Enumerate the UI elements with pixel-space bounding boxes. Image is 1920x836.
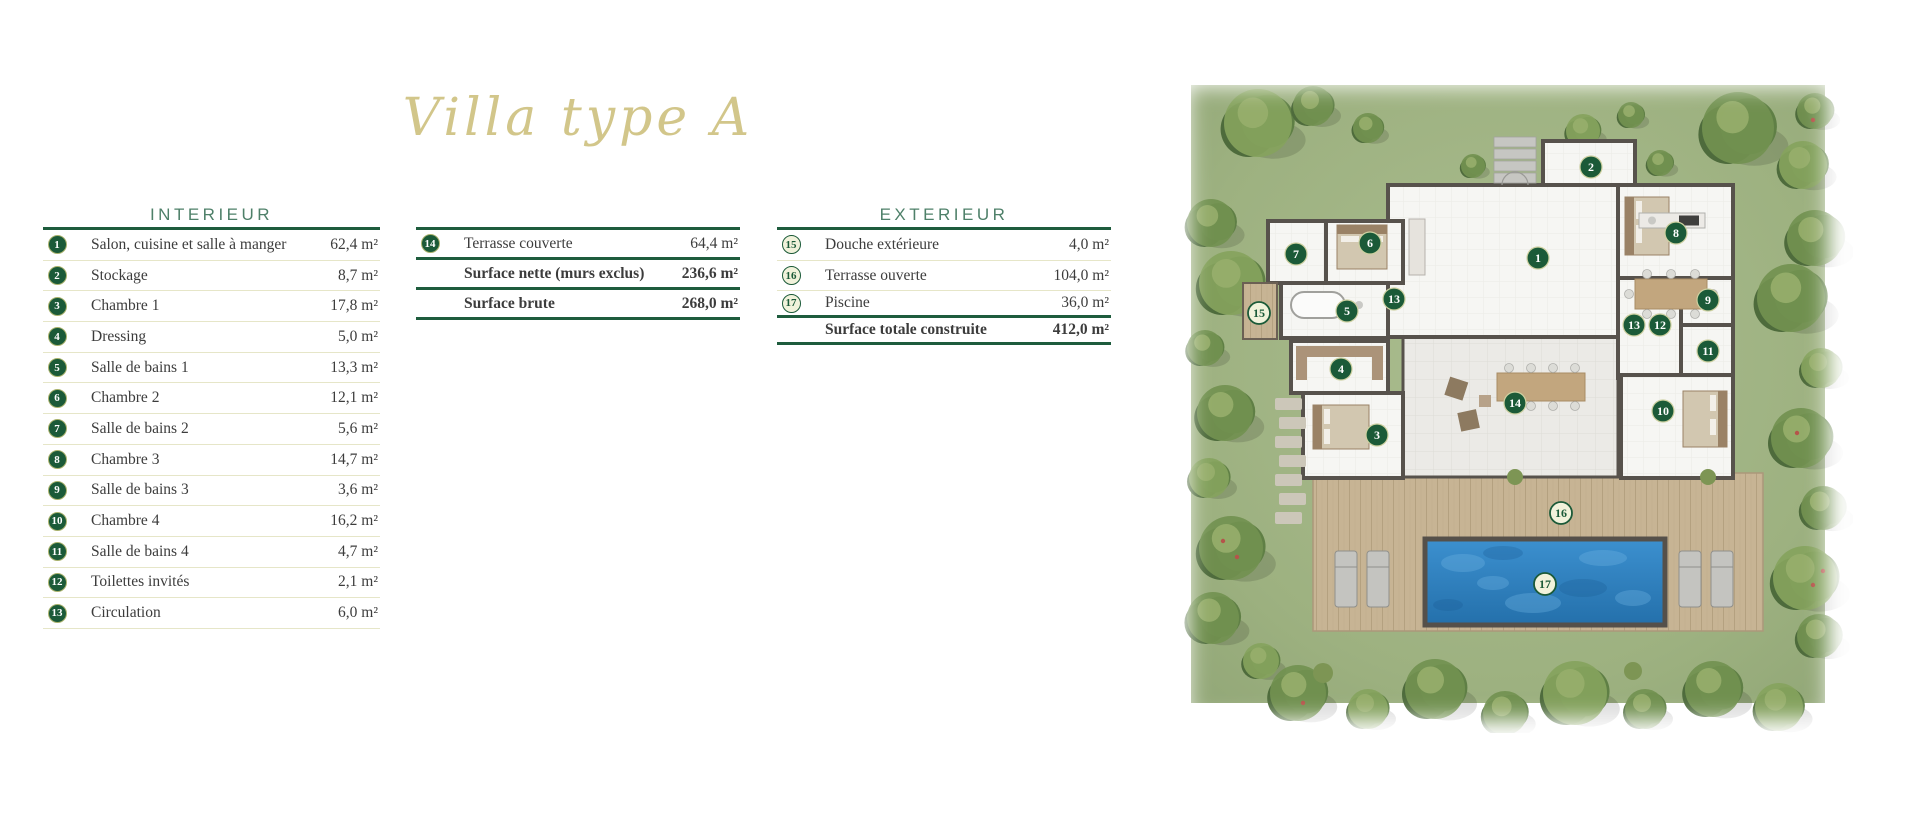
- room-number-badge: 11: [48, 542, 67, 561]
- room-area-value: 3,6 m²: [338, 481, 380, 499]
- badge-slot: 2: [47, 266, 67, 285]
- room-number-badge: 1: [48, 235, 67, 254]
- surface-row: Surface brute 268,0 m²: [416, 290, 740, 320]
- exterior-rows: 15 Douche extérieure 4,0 m² 16 Terrasse …: [777, 227, 1111, 345]
- surface-label: Surface brute: [464, 295, 682, 313]
- room-area-value: 5,0 m²: [338, 328, 380, 346]
- badge-slot: 15: [781, 235, 801, 254]
- surface-label: Terrasse couverte: [464, 235, 690, 253]
- badge-slot: 13: [47, 604, 67, 623]
- svg-text:4: 4: [1338, 362, 1344, 376]
- badge-slot: 1: [47, 235, 67, 254]
- surface-row: 5 Salle de bains 1 13,3 m²: [43, 353, 380, 384]
- plan-marker-11: 11: [1697, 340, 1719, 362]
- surface-summary-table: 14 Terrasse couverte 64,4 m² Surface net…: [416, 227, 740, 320]
- room-number-badge: 10: [48, 512, 67, 531]
- room-area-value: 6,0 m²: [338, 604, 380, 622]
- room-label: Chambre 4: [91, 512, 330, 530]
- room-number-badge: 7: [48, 419, 67, 438]
- room-label: Circulation: [91, 604, 338, 622]
- villa-title: Villa type A: [386, 88, 770, 148]
- svg-text:7: 7: [1293, 247, 1299, 261]
- badge-slot: [781, 321, 801, 340]
- room-label: Toilettes invités: [91, 573, 338, 591]
- surface-value: 64,4 m²: [690, 235, 740, 253]
- room-label: Salle de bains 2: [91, 420, 338, 438]
- surface-row: 13 Circulation 6,0 m²: [43, 598, 380, 629]
- room-label: Salle de bains 1: [91, 359, 330, 377]
- room-area-value: 412,0 m²: [1053, 321, 1111, 339]
- plan-marker-17: 17: [1534, 573, 1556, 595]
- room-number-badge: 9: [48, 481, 67, 500]
- plan-marker-10: 10: [1652, 400, 1674, 422]
- svg-text:5: 5: [1344, 304, 1350, 318]
- surface-row: 12 Toilettes invités 2,1 m²: [43, 568, 380, 599]
- plan-marker-3: 3: [1366, 424, 1388, 446]
- room-number-badge: 5: [48, 358, 67, 377]
- room-area-value: 36,0 m²: [1061, 294, 1111, 312]
- plan-marker-15: 15: [1248, 302, 1270, 324]
- room-label: Dressing: [91, 328, 338, 346]
- surface-row: 6 Chambre 2 12,1 m²: [43, 383, 380, 414]
- surface-row: 16 Terrasse ouverte 104,0 m²: [777, 261, 1111, 292]
- plan-marker-7: 7: [1285, 243, 1307, 265]
- flower-accent: [1301, 701, 1305, 705]
- svg-text:13: 13: [1388, 292, 1400, 306]
- surface-row: 17 Piscine 36,0 m²: [777, 291, 1111, 318]
- svg-text:2: 2: [1588, 160, 1594, 174]
- svg-text:15: 15: [1253, 306, 1265, 320]
- room-number-badge: 14: [421, 234, 440, 253]
- room-area-value: 104,0 m²: [1054, 267, 1111, 285]
- room-area-value: 4,0 m²: [1069, 236, 1111, 254]
- flower-accent: [1811, 118, 1815, 122]
- badge-slot: 7: [47, 419, 67, 438]
- surface-row: 10 Chambre 4 16,2 m²: [43, 506, 380, 537]
- interior-surface-table: INTERIEUR 1 Salon, cuisine et salle à ma…: [43, 205, 380, 629]
- svg-text:8: 8: [1673, 226, 1679, 240]
- plan-marker-16: 16: [1550, 502, 1572, 524]
- room-number-badge: 3: [48, 297, 67, 316]
- surface-row: 4 Dressing 5,0 m²: [43, 322, 380, 353]
- svg-text:14: 14: [1509, 396, 1521, 410]
- svg-text:1: 1: [1535, 251, 1541, 265]
- interior-rows: 1 Salon, cuisine et salle à manger 62,4 …: [43, 227, 380, 629]
- room-number-badge: 8: [48, 450, 67, 469]
- surface-row: 8 Chambre 3 14,7 m²: [43, 445, 380, 476]
- room-number-badge: 4: [48, 327, 67, 346]
- flower-accent: [1221, 539, 1225, 543]
- shelf: [1409, 219, 1425, 275]
- room-area-value: 13,3 m²: [330, 359, 380, 377]
- bed-chambre4: [1683, 391, 1727, 447]
- svg-text:9: 9: [1705, 293, 1711, 307]
- room-label: Chambre 1: [91, 297, 330, 315]
- badge-slot: [420, 264, 440, 283]
- room-number-badge: 15: [782, 235, 801, 254]
- badge-slot: 3: [47, 297, 67, 316]
- room-area-value: 2,1 m²: [338, 573, 380, 591]
- plan-marker-5: 5: [1336, 300, 1358, 322]
- badge-slot: 8: [47, 450, 67, 469]
- room-number-badge: 16: [782, 266, 801, 285]
- surface-row: 14 Terrasse couverte 64,4 m²: [416, 230, 740, 260]
- room-label: Surface totale construite: [825, 321, 1053, 339]
- room-label: Piscine: [825, 294, 1061, 312]
- svg-text:16: 16: [1555, 506, 1567, 520]
- plan-marker-13: 13: [1383, 288, 1405, 310]
- room-number-badge: 13: [48, 604, 67, 623]
- brochure-page: Villa type A INTERIEUR 1 Salon, cuisine …: [0, 0, 1920, 836]
- flower-accent: [1795, 431, 1799, 435]
- room-area-value: 17,8 m²: [330, 297, 380, 315]
- svg-text:13: 13: [1628, 318, 1640, 332]
- badge-slot: 9: [47, 481, 67, 500]
- badge-slot: 16: [781, 266, 801, 285]
- room-label: Douche extérieure: [825, 236, 1069, 254]
- room-number-badge: 17: [782, 294, 801, 313]
- plan-marker-4: 4: [1330, 358, 1352, 380]
- surface-row: 1 Salon, cuisine et salle à manger 62,4 …: [43, 230, 380, 261]
- badge-slot: 4: [47, 327, 67, 346]
- surface-row: 15 Douche extérieure 4,0 m²: [777, 230, 1111, 261]
- room-area-value: 62,4 m²: [330, 236, 380, 254]
- flower-accent: [1811, 583, 1815, 587]
- svg-text:6: 6: [1367, 236, 1373, 250]
- plan-marker-13: 13: [1623, 314, 1645, 336]
- bed-chambre1: [1313, 405, 1369, 449]
- room-number-badge: 12: [48, 573, 67, 592]
- room-label: Salle de bains 4: [91, 543, 338, 561]
- badge-slot: 10: [47, 512, 67, 531]
- plan-marker-8: 8: [1665, 222, 1687, 244]
- plan-marker-9: 9: [1697, 289, 1719, 311]
- room-label: Chambre 3: [91, 451, 330, 469]
- site-plan: 123456789101112131314151617: [1163, 73, 1853, 733]
- svg-text:11: 11: [1702, 344, 1713, 358]
- room-area-value: 16,2 m²: [330, 512, 380, 530]
- svg-text:12: 12: [1654, 318, 1666, 332]
- room-area-value: 4,7 m²: [338, 543, 380, 561]
- room-area-value: 14,7 m²: [330, 451, 380, 469]
- badge-slot: 11: [47, 542, 67, 561]
- plan-marker-6: 6: [1359, 232, 1381, 254]
- svg-text:3: 3: [1374, 428, 1380, 442]
- surface-row: 11 Salle de bains 4 4,7 m²: [43, 537, 380, 568]
- surface-row: 3 Chambre 1 17,8 m²: [43, 291, 380, 322]
- surface-value: 268,0 m²: [682, 295, 740, 313]
- surface-row: Surface nette (murs exclus) 236,6 m²: [416, 260, 740, 290]
- room-label: Stockage: [91, 267, 338, 285]
- room-number-badge: 2: [48, 266, 67, 285]
- room-area-value: 8,7 m²: [338, 267, 380, 285]
- exterior-surface-table: EXTERIEUR 15 Douche extérieure 4,0 m² 16…: [777, 205, 1111, 345]
- room-label: Salon, cuisine et salle à manger: [91, 236, 330, 254]
- room-label: Terrasse ouverte: [825, 267, 1054, 285]
- room-number-badge: 6: [48, 389, 67, 408]
- surface-row: Surface totale construite 412,0 m²: [777, 318, 1111, 345]
- surface-row: 2 Stockage 8,7 m²: [43, 261, 380, 292]
- badge-slot: 17: [781, 294, 801, 313]
- flower-accent: [1235, 555, 1239, 559]
- plan-marker-1: 1: [1527, 247, 1549, 269]
- badge-slot: 14: [420, 234, 440, 253]
- plan-marker-2: 2: [1580, 156, 1602, 178]
- room-label: Chambre 2: [91, 389, 330, 407]
- svg-text:17: 17: [1539, 577, 1551, 591]
- badge-slot: 5: [47, 358, 67, 377]
- section-title-interieur: INTERIEUR: [43, 205, 380, 227]
- badge-slot: 12: [47, 573, 67, 592]
- surface-label: Surface nette (murs exclus): [464, 265, 682, 283]
- badge-slot: 6: [47, 389, 67, 408]
- floor-plan-svg: 123456789101112131314151617: [1163, 73, 1853, 733]
- surface-value: 236,6 m²: [682, 265, 740, 283]
- surface-row: 9 Salle de bains 3 3,6 m²: [43, 476, 380, 507]
- section-title-exterieur: EXTERIEUR: [777, 205, 1111, 227]
- svg-text:10: 10: [1657, 404, 1669, 418]
- room-label: Salle de bains 3: [91, 481, 338, 499]
- room-area-value: 12,1 m²: [330, 389, 380, 407]
- room-area-value: 5,6 m²: [338, 420, 380, 438]
- plan-marker-14: 14: [1504, 392, 1526, 414]
- surface-summary-rows: 14 Terrasse couverte 64,4 m² Surface net…: [416, 227, 740, 320]
- badge-slot: [420, 294, 440, 313]
- flower-accent: [1821, 569, 1825, 573]
- surface-row: 7 Salle de bains 2 5,6 m²: [43, 414, 380, 445]
- plan-marker-12: 12: [1649, 314, 1671, 336]
